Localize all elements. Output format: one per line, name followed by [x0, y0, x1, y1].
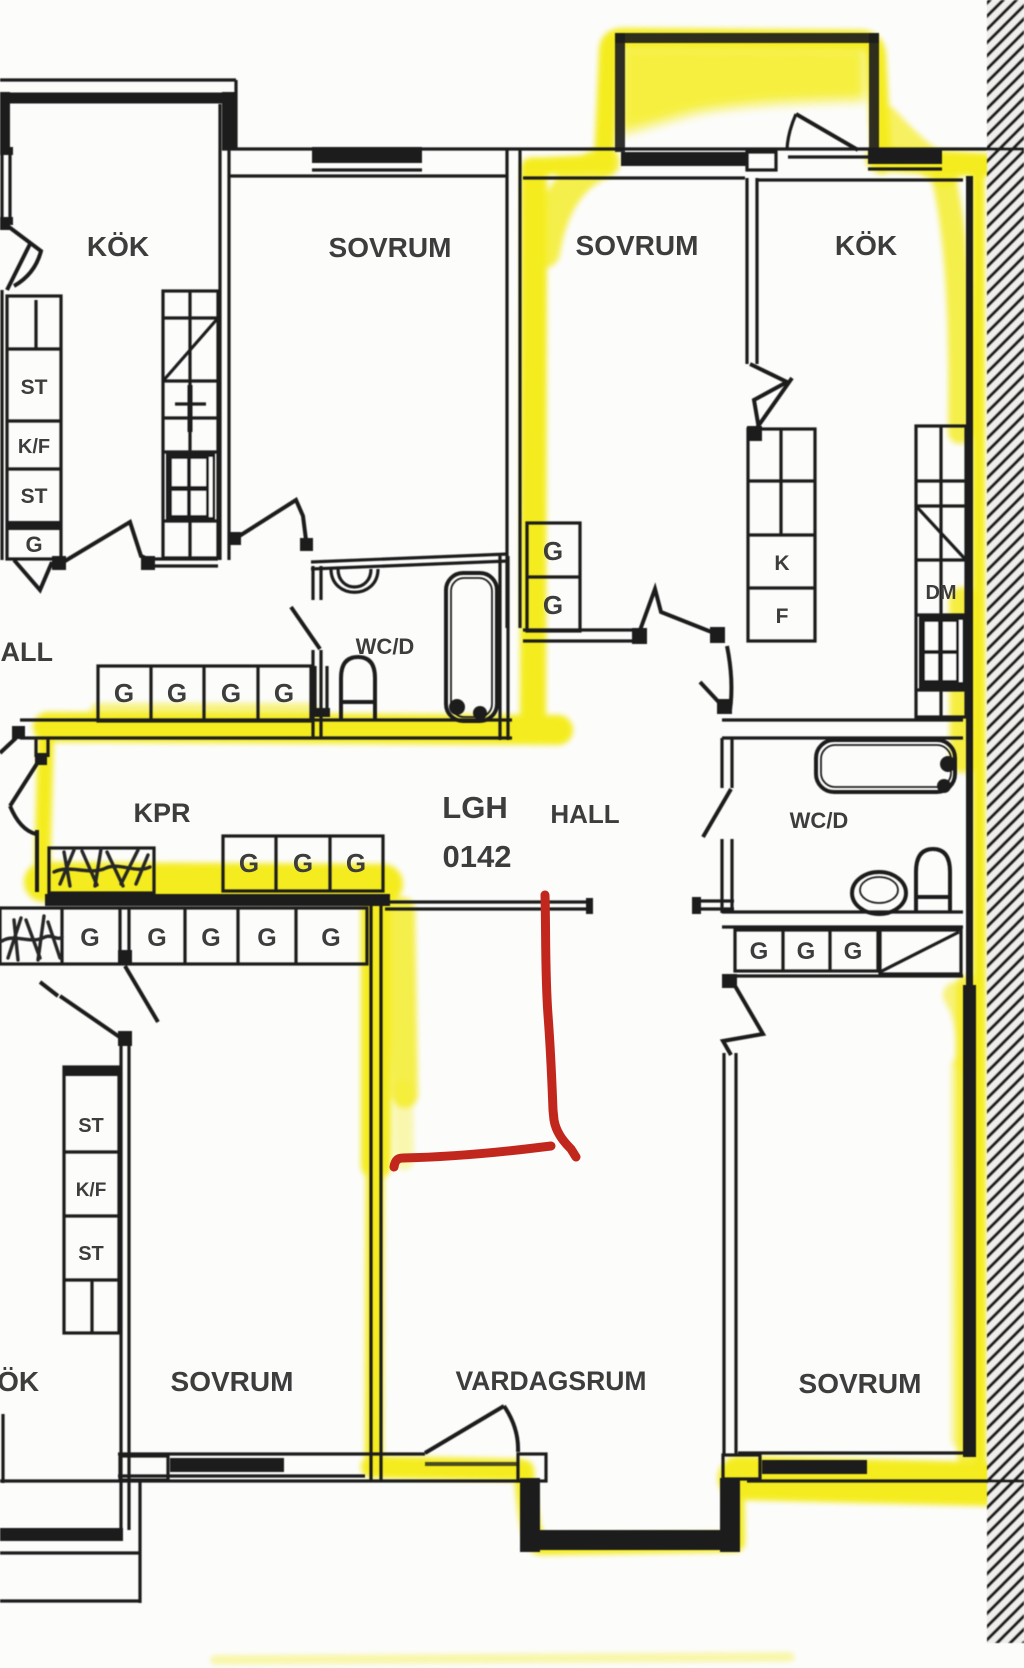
svg-text:DM: DM: [925, 582, 956, 604]
svg-text:KÖK: KÖK: [87, 231, 149, 262]
svg-text:WC/D: WC/D: [790, 808, 849, 833]
svg-text:G: G: [844, 938, 863, 965]
svg-text:SOVRUM: SOVRUM: [171, 1366, 294, 1397]
svg-text:LGH: LGH: [442, 790, 507, 825]
svg-text:K: K: [774, 552, 789, 575]
svg-text:G: G: [25, 532, 42, 557]
svg-text:SOVRUM: SOVRUM: [799, 1368, 922, 1399]
svg-text:KÖK: KÖK: [0, 1366, 39, 1397]
svg-text:SOVRUM: SOVRUM: [576, 230, 699, 261]
svg-text:K/F: K/F: [18, 436, 50, 458]
svg-text:0142: 0142: [443, 839, 512, 874]
svg-text:HALL: HALL: [0, 637, 53, 667]
svg-text:G: G: [221, 678, 241, 708]
svg-text:G: G: [346, 848, 366, 878]
svg-text:G: G: [543, 536, 563, 566]
svg-text:F: F: [776, 605, 789, 628]
svg-text:G: G: [239, 848, 259, 878]
svg-text:G: G: [167, 678, 187, 708]
svg-text:G: G: [114, 678, 134, 708]
svg-text:G: G: [257, 924, 276, 952]
svg-text:SOVRUM: SOVRUM: [329, 232, 452, 263]
svg-text:G: G: [147, 924, 166, 952]
svg-text:VARDAGSRUM: VARDAGSRUM: [456, 1366, 647, 1396]
svg-text:ST: ST: [78, 1243, 104, 1265]
svg-text:G: G: [321, 924, 340, 952]
svg-text:WC/D: WC/D: [356, 634, 415, 659]
svg-text:G: G: [797, 938, 816, 965]
svg-text:G: G: [293, 848, 313, 878]
svg-text:G: G: [201, 924, 220, 952]
svg-text:ST: ST: [78, 1115, 104, 1137]
svg-text:ST: ST: [21, 485, 48, 508]
svg-text:KPR: KPR: [133, 798, 190, 828]
svg-text:G: G: [543, 590, 563, 620]
svg-text:G: G: [80, 924, 99, 952]
svg-text:K/F: K/F: [76, 1180, 107, 1201]
svg-text:KÖK: KÖK: [835, 230, 897, 261]
svg-text:HALL: HALL: [550, 799, 619, 829]
svg-text:G: G: [274, 678, 294, 708]
svg-text:ST: ST: [21, 376, 48, 399]
svg-text:G: G: [750, 938, 769, 965]
